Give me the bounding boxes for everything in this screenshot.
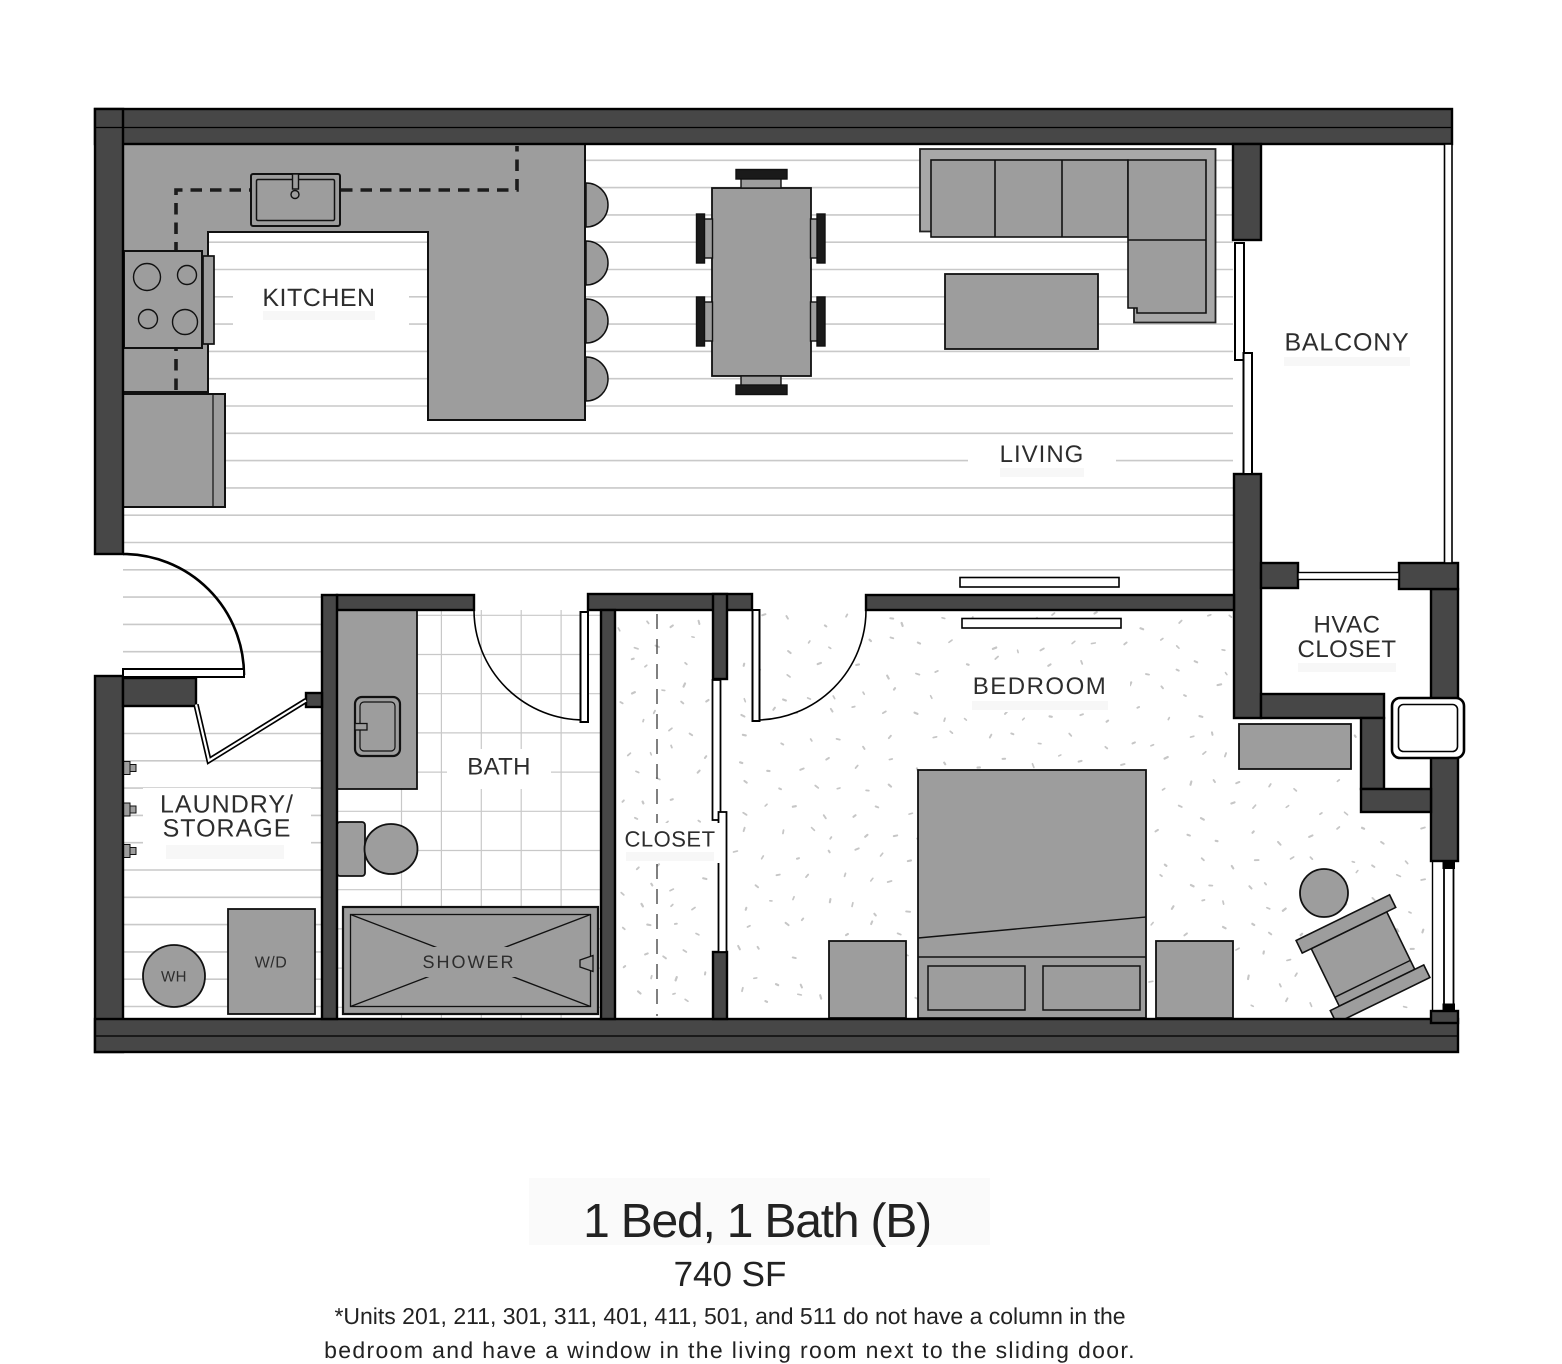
svg-text:CLOSET: CLOSET (624, 827, 715, 852)
svg-text:BATH: BATH (467, 754, 530, 781)
svg-text:SHOWER: SHOWER (423, 952, 516, 972)
svg-text:KITCHEN: KITCHEN (262, 284, 375, 312)
svg-text:BALCONY: BALCONY (1284, 329, 1409, 357)
svg-text:740 SF: 740 SF (674, 1255, 787, 1294)
svg-text:1 Bed, 1 Bath (B): 1 Bed, 1 Bath (B) (583, 1195, 931, 1248)
svg-text:LAUNDRY/STORAGE: LAUNDRY/STORAGE (160, 791, 294, 843)
svg-text:BEDROOM: BEDROOM (973, 673, 1108, 700)
svg-text:W/D: W/D (255, 955, 288, 972)
svg-text:LIVING: LIVING (1000, 441, 1085, 468)
svg-text:WH: WH (161, 969, 187, 986)
